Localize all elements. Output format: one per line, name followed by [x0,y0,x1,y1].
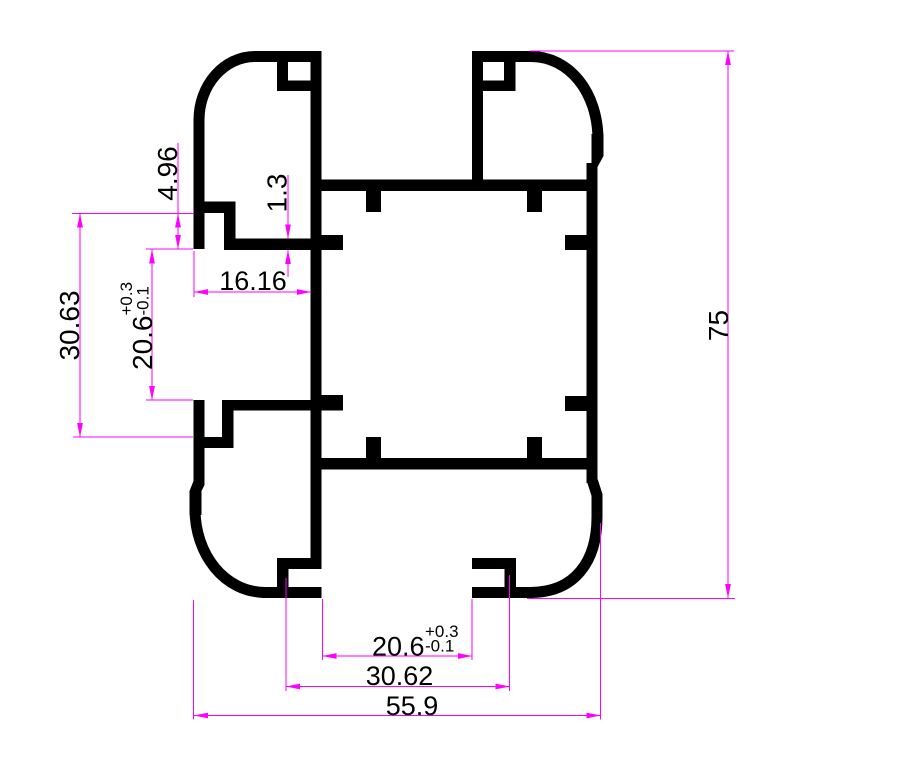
svg-text:16.16: 16.16 [219,266,287,296]
svg-text:20.6: 20.6 [372,632,425,662]
svg-text:75: 75 [703,310,734,341]
svg-text:-0.1: -0.1 [425,637,454,656]
svg-text:30.62: 30.62 [366,661,434,691]
svg-text:1.3: 1.3 [262,174,293,213]
svg-text:20.6: 20.6 [127,316,158,371]
svg-text:4.96: 4.96 [152,146,183,201]
svg-text:55.9: 55.9 [386,691,439,721]
svg-text:30.63: 30.63 [54,290,85,360]
svg-text:-0.1: -0.1 [134,286,153,315]
